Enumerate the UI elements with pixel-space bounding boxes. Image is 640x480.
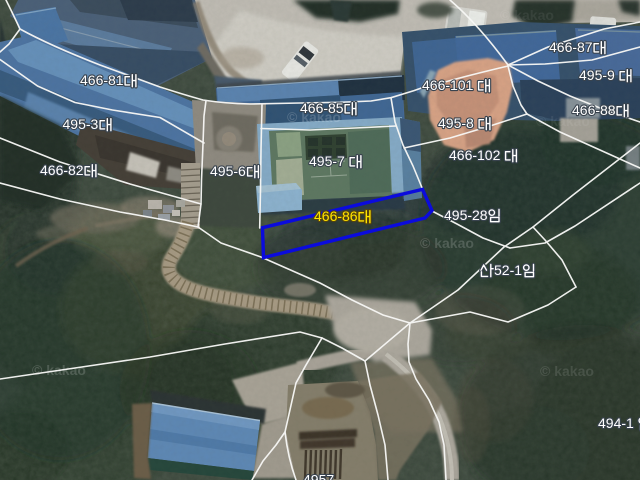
svg-text:4957: 4957 <box>303 472 334 480</box>
svg-text:466-86: 466-86 <box>314 208 358 224</box>
svg-text:© kakao: © kakao <box>540 363 594 379</box>
svg-text:466-101: 466-101 <box>422 77 474 93</box>
svg-text:© kakao: © kakao <box>32 362 86 378</box>
svg-text:495-28: 495-28 <box>444 207 488 223</box>
svg-text:494-1: 494-1 <box>598 415 634 431</box>
svg-text:466-85: 466-85 <box>300 100 344 116</box>
svg-text:495-7: 495-7 <box>309 153 345 169</box>
svg-text:466-102: 466-102 <box>449 147 501 163</box>
svg-text:495-9: 495-9 <box>579 67 615 83</box>
svg-text:466-88: 466-88 <box>572 102 616 118</box>
svg-text:466-81: 466-81 <box>80 72 124 88</box>
svg-text:495-8: 495-8 <box>438 115 474 131</box>
svg-text:495-6: 495-6 <box>210 163 246 179</box>
svg-text:52-1: 52-1 <box>494 262 522 278</box>
svg-text:© kakao: © kakao <box>500 7 554 23</box>
svg-text:466-87: 466-87 <box>549 39 593 55</box>
svg-text:495-3: 495-3 <box>63 116 99 132</box>
svg-text:466-82: 466-82 <box>40 162 84 178</box>
svg-text:© kakao: © kakao <box>420 235 474 251</box>
